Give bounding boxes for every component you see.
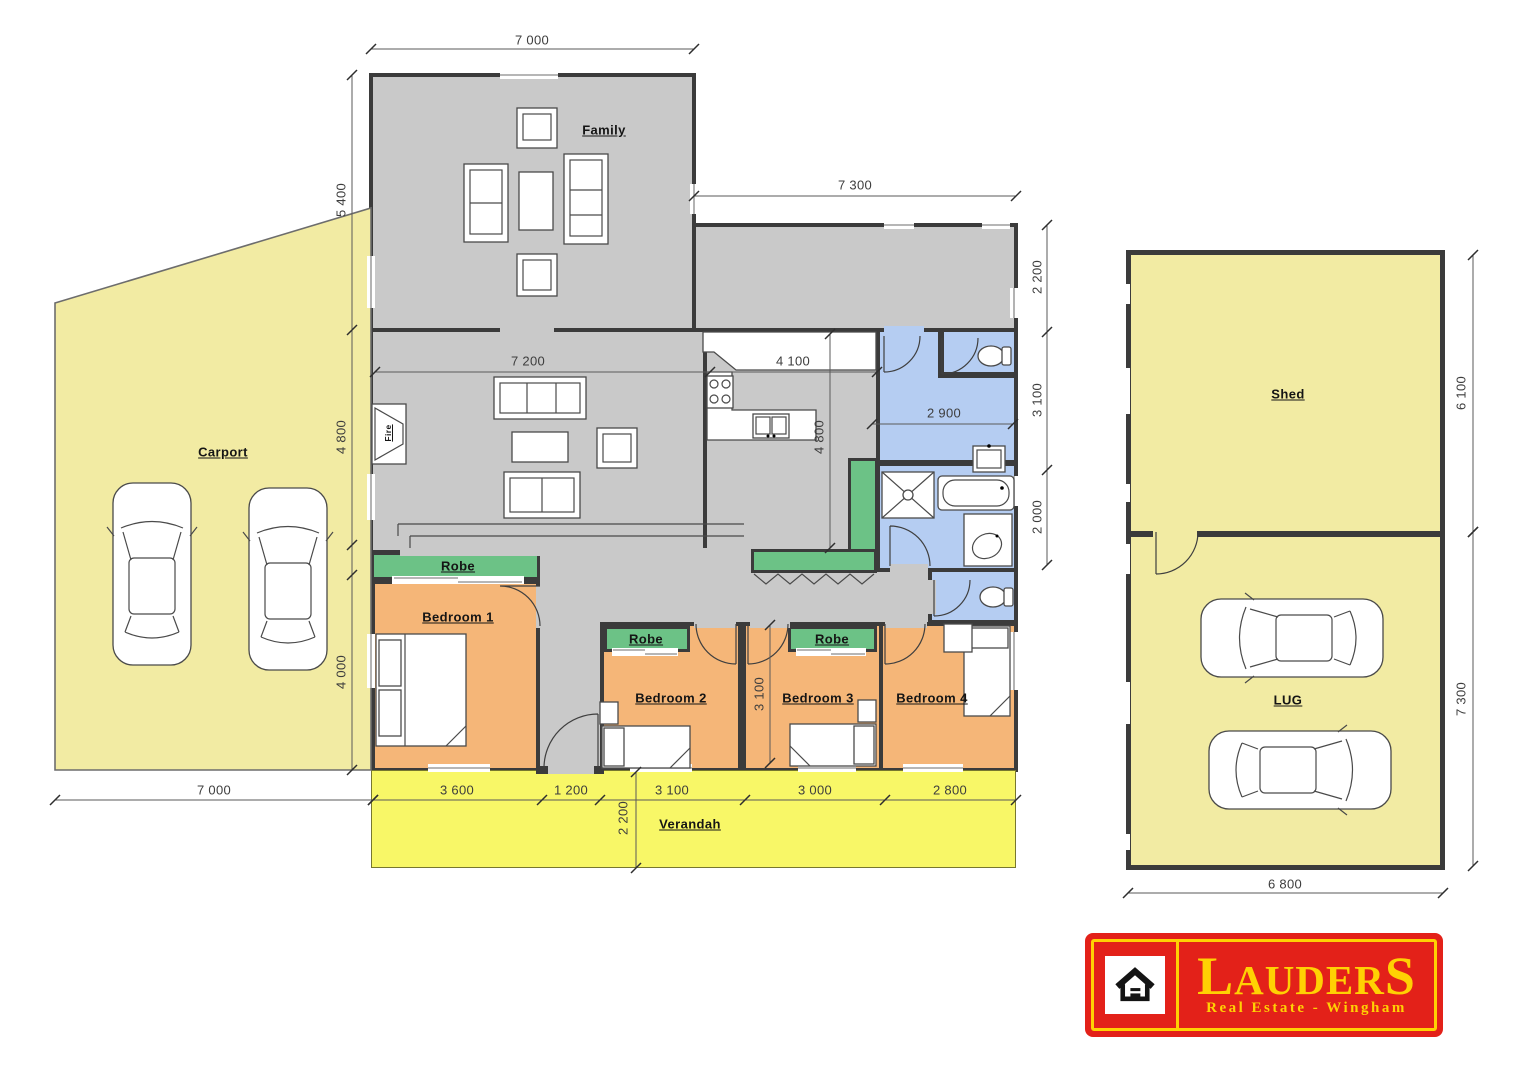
dim-carport-width: 7 000	[197, 783, 231, 798]
bed-single-bedroom3	[790, 700, 876, 766]
dim-meals-width: 7 300	[838, 178, 872, 193]
room-label-bedroom1: Bedroom 1	[422, 610, 494, 625]
dim-living-width: 7 200	[511, 354, 545, 369]
room-label-family: Family	[582, 123, 626, 138]
dim-living-depth: 4 800	[334, 420, 349, 454]
car-garage-2	[1209, 725, 1391, 815]
dim-bath-depth: 2 000	[1030, 500, 1045, 534]
logo-text: LAUDERS Real Estate - Wingham	[1179, 953, 1434, 1017]
sink	[753, 414, 789, 438]
bed-double-bedroom1	[376, 634, 466, 746]
laundry-tub	[973, 444, 1005, 472]
shower	[882, 472, 934, 518]
dim-garage-width: 6 800	[1268, 877, 1302, 892]
room-label-robe3: Robe	[815, 632, 849, 647]
room-label-bedroom3: Bedroom 3	[782, 691, 854, 706]
logo-frame: LAUDERS Real Estate - Wingham	[1091, 939, 1437, 1031]
room-label-carport: Carport	[198, 445, 248, 460]
logo-tagline: Real Estate - Wingham	[1179, 1000, 1434, 1017]
dim-bath-zone-depth: 3 100	[1030, 383, 1045, 417]
car-carport-2	[243, 488, 333, 670]
dim-meals-depth: 2 200	[1030, 260, 1045, 294]
dim-verandah-depth: 2 200	[616, 801, 631, 835]
room-label-shed: Shed	[1271, 387, 1304, 402]
lounge-furniture	[372, 377, 744, 548]
dim-bedroom4-width: 2 800	[933, 783, 967, 798]
dim-bedroom2-width: 3 100	[655, 783, 689, 798]
floor-plan-canvas: Family Carport Robe Robe Robe Bedroom 1 …	[0, 0, 1525, 1080]
dim-kitchen-width: 4 100	[776, 354, 810, 369]
dim-garage-depth: 7 300	[1454, 682, 1469, 716]
dim-family-width: 7 000	[515, 33, 549, 48]
room-label-robe2: Robe	[629, 632, 663, 647]
logo-brand-text: LAUDERS	[1179, 953, 1434, 1003]
bed-single-bedroom2	[600, 702, 690, 768]
room-label-verandah: Verandah	[659, 817, 721, 832]
dim-hall-width: 1 200	[554, 783, 588, 798]
logo-house-tile	[1105, 956, 1165, 1014]
room-label-lug: LUG	[1274, 693, 1303, 708]
dim-shed-depth: 6 100	[1454, 376, 1469, 410]
toilet-wc2	[980, 587, 1013, 607]
room-label-bedroom4: Bedroom 4	[896, 691, 968, 706]
dim-bedroom3-depth: 3 100	[752, 677, 767, 711]
vanity-basin	[964, 514, 1012, 566]
car-carport-1	[107, 483, 197, 665]
room-label-fire: Fire	[383, 424, 393, 441]
toilet-wc1	[978, 346, 1011, 366]
plan-linework	[0, 0, 1525, 1080]
dim-bedroom1-width: 3 600	[440, 783, 474, 798]
dim-laundry-width: 2 900	[927, 406, 961, 421]
steps	[398, 524, 744, 548]
dim-bedroom3-width: 3 000	[798, 783, 832, 798]
room-label-robe1: Robe	[441, 559, 475, 574]
house-icon	[1112, 962, 1158, 1008]
dim-family-depth: 5 400	[334, 183, 349, 217]
car-garage-1	[1201, 593, 1383, 683]
stove	[707, 376, 733, 408]
lauders-logo: LAUDERS Real Estate - Wingham	[1085, 933, 1443, 1037]
room-label-bedroom2: Bedroom 2	[635, 691, 707, 706]
carport-area	[55, 208, 371, 770]
kitchen-fittings	[703, 332, 876, 440]
bathtub	[938, 476, 1014, 510]
dim-kitchen-depth: 4 800	[812, 420, 827, 454]
dim-bedrooms-depth: 4 000	[334, 655, 349, 689]
